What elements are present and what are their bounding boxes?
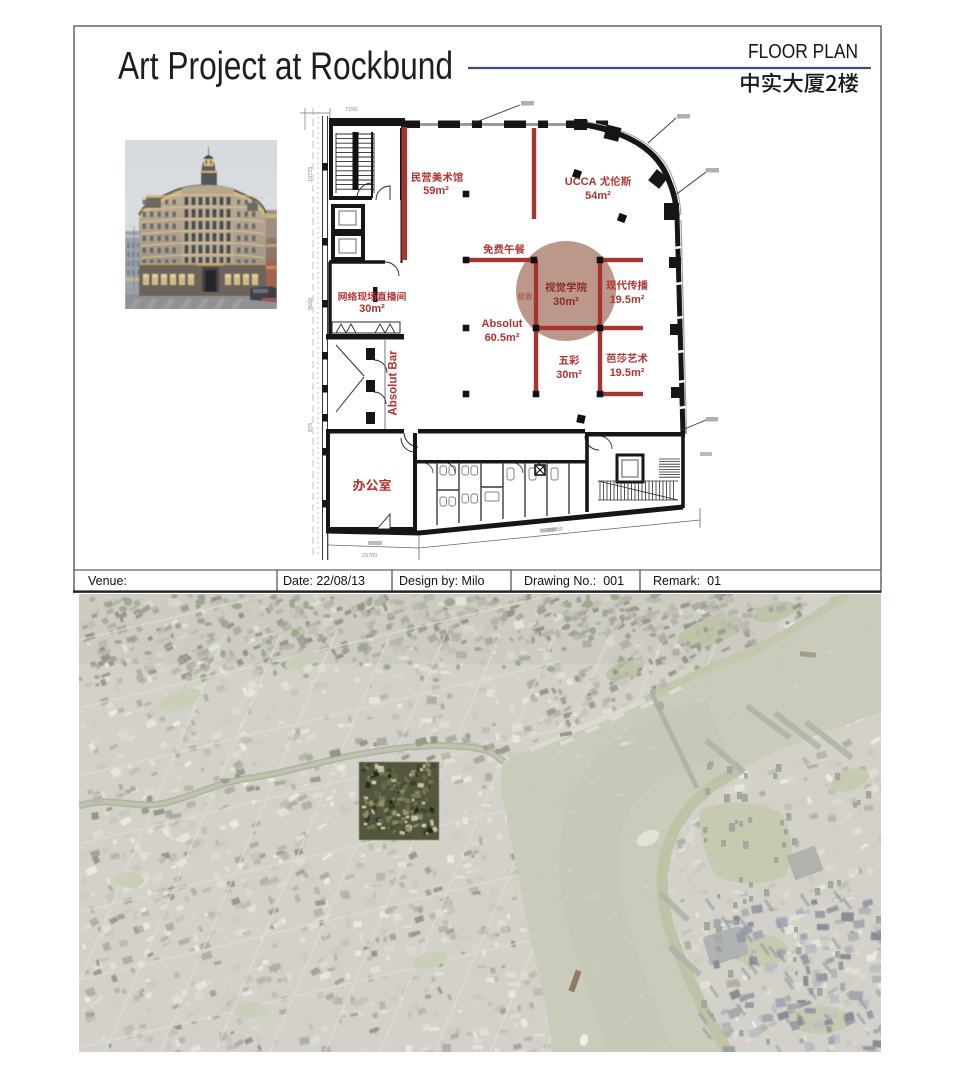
svg-text:Art Project at Rockbund: Art Project at Rockbund	[118, 45, 453, 88]
svg-text:UCCA: UCCA	[565, 176, 597, 188]
svg-text:Design by: Milo: Design by: Milo	[399, 574, 484, 588]
svg-text:19.5m²: 19.5m²	[610, 294, 645, 306]
svg-text:19.5m²: 19.5m²	[610, 367, 645, 379]
svg-text:FLOOR PLAN: FLOOR PLAN	[748, 41, 858, 63]
svg-text:30m²: 30m²	[556, 369, 582, 381]
svg-text:Date: 22/08/13: Date: 22/08/13	[283, 574, 365, 588]
svg-text:875: 875	[308, 423, 314, 432]
svg-text:Absolut Bar: Absolut Bar	[388, 350, 400, 416]
svg-text:Drawing No.: 001: Drawing No.: 001	[524, 574, 624, 588]
svg-text:7150: 7150	[345, 107, 357, 113]
svg-text:Absolut: Absolut	[482, 318, 523, 330]
svg-text:60.5m²: 60.5m²	[485, 332, 520, 344]
svg-text:30m²: 30m²	[359, 303, 385, 315]
svg-text:10725: 10725	[308, 167, 314, 182]
svg-text:9650: 9650	[308, 298, 314, 310]
svg-text:59m²: 59m²	[423, 185, 449, 197]
svg-text:30m²: 30m²	[553, 296, 579, 308]
svg-text:54m²: 54m²	[585, 190, 611, 202]
svg-text:23700: 23700	[362, 553, 377, 559]
svg-text:Venue:: Venue:	[88, 574, 127, 588]
svg-text:Remark: 01: Remark: 01	[653, 574, 721, 588]
